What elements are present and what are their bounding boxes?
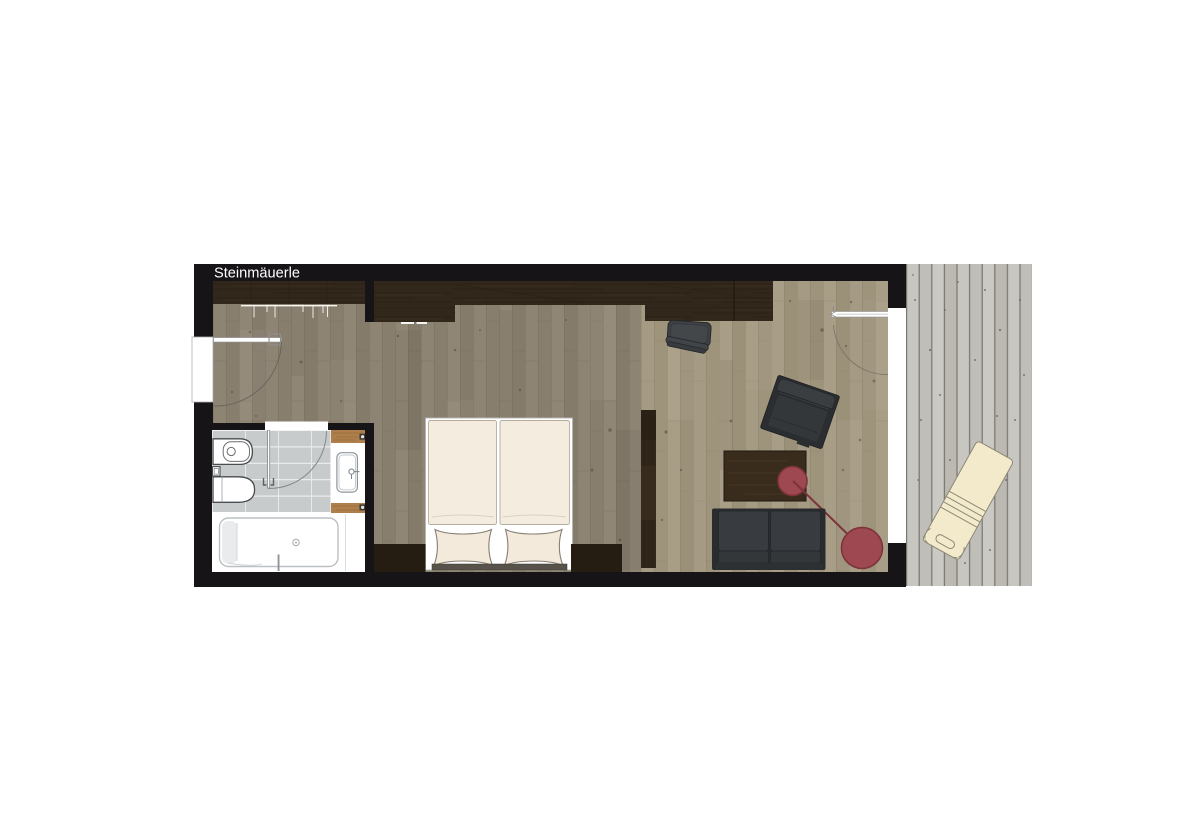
svg-text:Steinmäuerle: Steinmäuerle bbox=[214, 266, 300, 282]
